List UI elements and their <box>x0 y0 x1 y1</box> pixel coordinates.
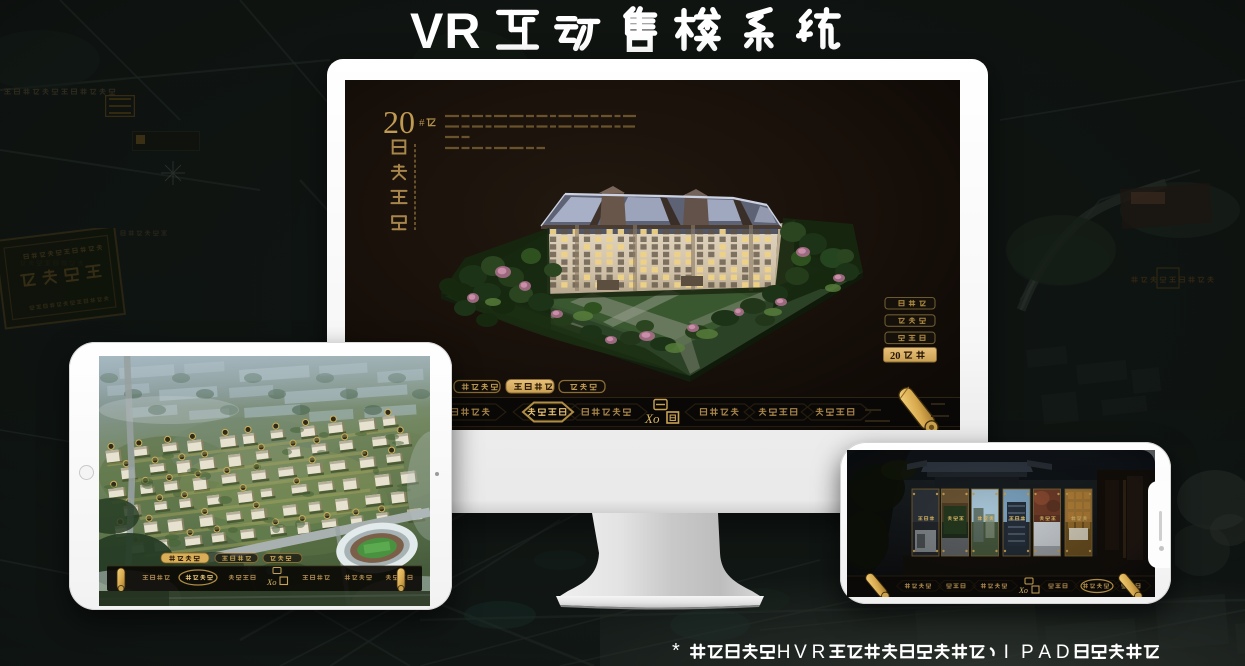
svg-text:R: R <box>812 642 826 663</box>
svg-text:20: 20 <box>383 104 415 140</box>
svg-text:Xo: Xo <box>644 411 660 426</box>
svg-text:VR: VR <box>410 5 481 59</box>
svg-text:20: 20 <box>890 351 901 362</box>
svg-text:V: V <box>794 642 807 663</box>
svg-text:D: D <box>1056 642 1070 663</box>
svg-text:*: * <box>672 640 680 662</box>
svg-text:P: P <box>1021 642 1034 663</box>
svg-text:I: I <box>1004 642 1009 663</box>
svg-text:A: A <box>1038 642 1051 663</box>
svg-text:Xo: Xo <box>1018 586 1028 595</box>
svg-text:#: # <box>419 117 425 129</box>
svg-text:Xo: Xo <box>266 577 276 587</box>
svg-text:H: H <box>777 642 791 663</box>
